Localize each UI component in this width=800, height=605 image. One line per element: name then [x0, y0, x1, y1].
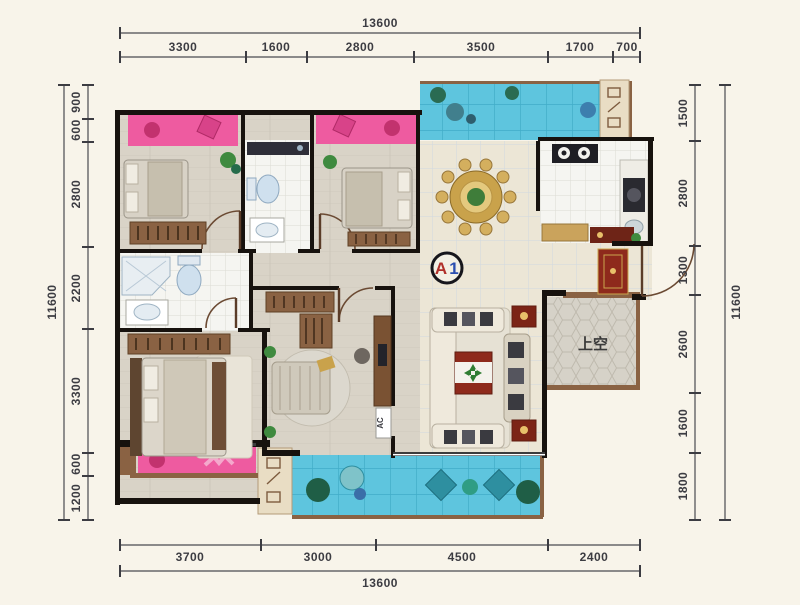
- plant-icon: [264, 346, 276, 358]
- chair-icon: [497, 171, 509, 183]
- dim-left-seg: 600: [69, 119, 83, 141]
- pillow-icon: [126, 192, 138, 212]
- pillow-icon: [398, 200, 410, 220]
- plant-icon: [306, 478, 330, 502]
- chair-icon: [459, 159, 471, 171]
- cushion-icon: [508, 368, 524, 384]
- void-label: 上空: [578, 335, 608, 353]
- deco-icon: [520, 426, 528, 434]
- chair-icon: [504, 191, 516, 203]
- toilet-tank: [247, 178, 256, 200]
- floorplan-drawing: 上空: [0, 0, 800, 600]
- chair-icon: [442, 211, 454, 223]
- dim-top-seg: 3500: [467, 40, 496, 54]
- flower-cushion-icon: [144, 122, 160, 138]
- dim-top-seg: 1700: [566, 40, 595, 54]
- pillow-icon: [398, 172, 410, 192]
- dim-top-seg: 3300: [169, 40, 198, 54]
- dim-bottom-seg: 2400: [580, 550, 609, 564]
- dim-right-seg: 1800: [676, 472, 690, 501]
- ac-label: AC: [376, 417, 385, 429]
- blanket-icon: [164, 360, 206, 454]
- cushion-icon: [444, 312, 457, 326]
- chair-icon: [480, 159, 492, 171]
- cushion-icon: [480, 430, 493, 444]
- monitor-icon: [378, 344, 387, 366]
- cushion-icon: [480, 312, 493, 326]
- dim-right-seg: 1600: [676, 409, 690, 438]
- dimensions-top: 13600 3300 1600 2800 3500 1700 700: [120, 16, 640, 63]
- plant-icon: [323, 155, 337, 169]
- dimensions-bottom: 3700 3000 4500 2400 13600: [120, 539, 640, 590]
- dim-right-seg: 2600: [676, 330, 690, 359]
- flower-cushion-icon: [384, 120, 400, 136]
- cushion-icon: [508, 342, 524, 358]
- blanket-icon: [346, 172, 382, 226]
- blanket-icon: [148, 162, 182, 216]
- deco-icon: [597, 232, 603, 238]
- burner-icon: [562, 151, 567, 156]
- bottom-water-balcony: [258, 448, 544, 519]
- headboard-icon: [130, 358, 142, 456]
- toilet-tank: [178, 256, 200, 265]
- rock-pool-icon: [446, 103, 464, 121]
- plant-icon: [264, 426, 276, 438]
- bench-icon: [212, 362, 226, 450]
- chair-icon: [459, 223, 471, 235]
- toilet-icon: [177, 265, 201, 295]
- dim-bottom-seg: 3700: [176, 550, 205, 564]
- dim-left-seg: 2200: [69, 274, 83, 303]
- pillow-icon: [126, 164, 138, 184]
- balcony-table-icon: [462, 479, 478, 495]
- dimensions-left: 11600 900 600 2800 2200 3300 600 1200: [45, 85, 94, 520]
- chair-icon: [497, 211, 509, 223]
- unit-label-1: 1: [449, 259, 458, 278]
- dim-left-seg: 2800: [69, 180, 83, 209]
- entry-hall: [598, 249, 628, 294]
- plant-icon: [516, 480, 540, 504]
- cushion-icon: [444, 430, 457, 444]
- dim-right-seg: 2800: [676, 179, 690, 208]
- centerpiece-plant-icon: [467, 188, 485, 206]
- wardrobe-icon: [300, 314, 332, 348]
- dim-top-seg: 2800: [346, 40, 375, 54]
- round-lounge-icon: [340, 466, 364, 490]
- dim-left-seg: 900: [69, 91, 83, 113]
- living-room: [430, 306, 536, 448]
- unit-label-a: A: [435, 259, 447, 278]
- plant-icon: [505, 86, 519, 100]
- deco-icon: [520, 312, 528, 320]
- kitchen: [540, 141, 650, 243]
- wardrobe-icon: [348, 232, 410, 246]
- cushion-icon: [462, 312, 475, 326]
- dim-right-total: 11600: [729, 284, 743, 319]
- void-area: 上空: [547, 292, 640, 390]
- cushion-icon: [508, 394, 524, 410]
- dim-top-total: 13600: [362, 16, 398, 30]
- dim-bottom-seg: 3000: [304, 550, 333, 564]
- chair-icon: [480, 223, 492, 235]
- dim-left-seg: 1200: [69, 484, 83, 513]
- wood-cabinet: [542, 224, 588, 241]
- dim-top-seg: 1600: [262, 40, 291, 54]
- rock-icon: [466, 114, 476, 124]
- dim-right-seg: 1300: [676, 256, 690, 285]
- cushion-icon: [462, 430, 475, 444]
- wardrobe-icon: [128, 334, 230, 354]
- unit-badge: A 1: [432, 253, 462, 283]
- dim-left-seg: 600: [69, 453, 83, 475]
- dim-right-seg: 1500: [676, 99, 690, 128]
- bay-window-bed2: [316, 114, 416, 144]
- red-cabinet: [590, 227, 634, 243]
- burner-icon: [582, 151, 587, 156]
- dim-bottom-seg: 4500: [448, 550, 477, 564]
- rug-medallion: [610, 268, 616, 274]
- toilet-icon: [257, 175, 279, 203]
- dim-top-seg: 700: [616, 40, 638, 54]
- faucet-icon: [297, 145, 303, 151]
- plant-icon: [430, 87, 446, 103]
- top-water-balcony: [420, 80, 632, 140]
- dim-bottom-total: 13600: [362, 576, 398, 590]
- dim-left-seg: 3300: [69, 377, 83, 406]
- bathroom-master: [120, 253, 253, 331]
- plant-icon: [231, 164, 241, 174]
- chair-icon: [442, 171, 454, 183]
- pillow-icon: [144, 366, 158, 390]
- deco-icon: [354, 488, 366, 500]
- chair-icon: [436, 191, 448, 203]
- oven-door-icon: [627, 188, 641, 202]
- deco-basin-icon: [580, 102, 596, 118]
- bathroom-top: [245, 140, 312, 253]
- floorplan-page: 上空: [0, 0, 800, 600]
- basin-icon: [134, 304, 160, 320]
- basin-icon: [256, 223, 278, 237]
- dim-left-total: 11600: [45, 284, 59, 319]
- pillow-icon: [144, 398, 158, 422]
- desk-chair-icon: [354, 348, 370, 364]
- dimensions-right: 1500 2800 1300 2600 1600 1800 11600: [676, 85, 743, 520]
